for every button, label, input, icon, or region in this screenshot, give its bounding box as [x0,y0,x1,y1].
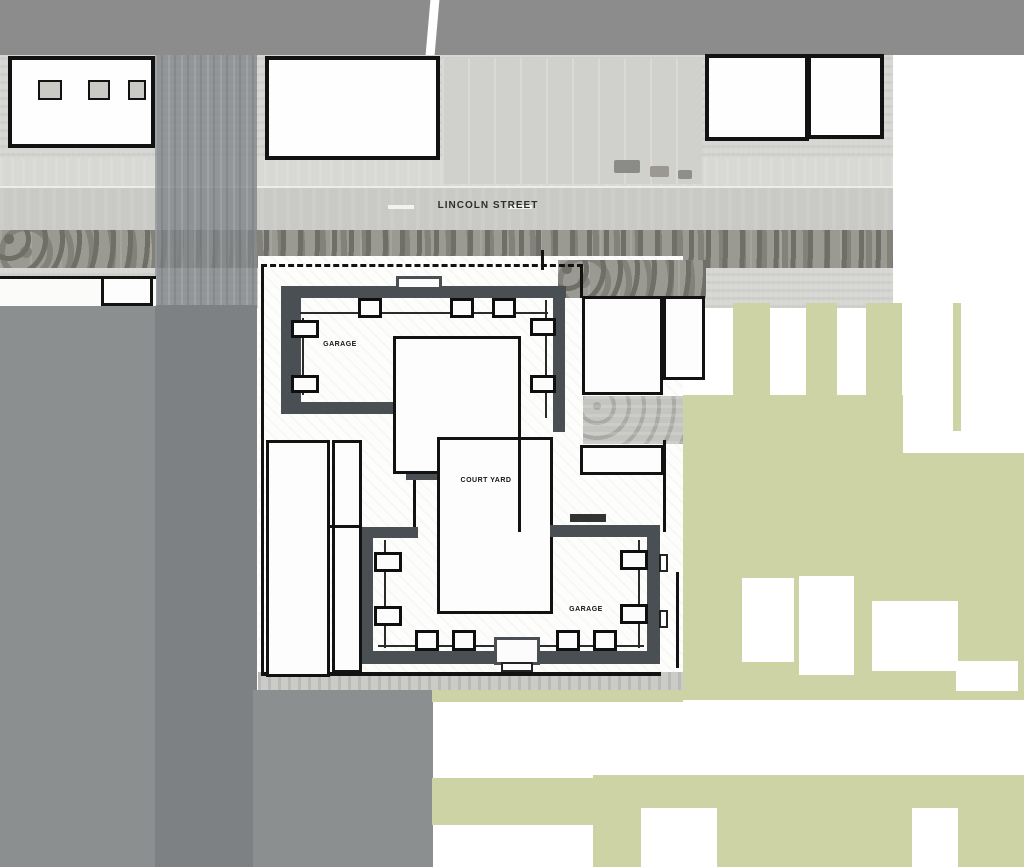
site-boundary-ne [580,264,583,298]
wall-top-right [550,525,660,537]
parking-stall [374,552,402,572]
wall-right [553,286,565,432]
street-name-label: LINCOLN STREET [408,200,568,211]
building-divider [518,440,521,532]
building-cutout [872,601,958,671]
parking-stall [620,550,648,570]
wall-step-line [413,480,416,530]
parking-stall [450,298,474,318]
entry-gate-north [396,276,442,290]
building-footprint [265,56,440,160]
green-band-thin [432,690,683,702]
top-gray-bar [0,0,1024,55]
bay-window [659,554,668,572]
parking-stall [291,320,319,338]
green-strip [953,303,961,431]
existing-building [266,440,330,677]
property-line [676,572,679,668]
label-courtyard: COURT YARD [434,477,538,484]
parking-stall [358,298,382,318]
parking-stall [291,375,319,393]
building-footprint [663,296,705,380]
parking-stall [530,375,556,393]
car [678,170,692,179]
cross-street-masked [155,305,257,867]
building-cutout [742,578,794,662]
building-footprint [101,276,153,306]
dimension-dash [570,514,606,522]
driveway [583,396,683,444]
site-boundary-west [261,264,264,676]
gray-mask-left [0,305,155,867]
building-notch [88,80,110,100]
building-cutout [956,661,1018,691]
building-footprint [807,54,884,139]
wall-left [281,286,301,414]
parking-stall [492,298,516,318]
building-footprint [705,54,809,141]
wall-right [647,527,660,664]
site-plan-canvas: LINCOLN STREET [0,0,1024,867]
car [650,166,669,177]
parking-stall [530,318,556,336]
building-footprint [8,56,155,148]
building-cutout [641,808,717,867]
parking-stall [620,604,648,624]
bay-window [659,610,668,628]
parking-stall [556,630,580,651]
gray-mask-center [253,690,433,867]
building-cutout [912,808,958,867]
label-lower-garage: GARAGE [550,606,622,613]
main-building-lower [437,437,553,614]
survey-tick [541,250,544,270]
building-notch [128,80,146,100]
building-footprint [582,296,663,395]
entry-stoop [501,662,533,672]
site-boundary-north [261,264,583,267]
parking-stall [374,606,402,626]
parking-stall [415,630,439,651]
parking-stall [452,630,476,651]
building-notch [38,80,62,100]
building-cutout [799,576,854,675]
entry-gate-south [494,637,540,665]
building-footprint [580,445,664,475]
parking-stall [593,630,617,651]
green-block [683,395,903,567]
property-line [663,440,666,532]
existing-building [332,440,362,673]
cross-street-aerial [155,45,257,307]
green-block [903,453,1024,567]
car [614,160,640,173]
label-upper-garage: GARAGE [305,341,375,348]
party-wall-line [330,525,362,528]
green-band-lower [432,778,593,825]
